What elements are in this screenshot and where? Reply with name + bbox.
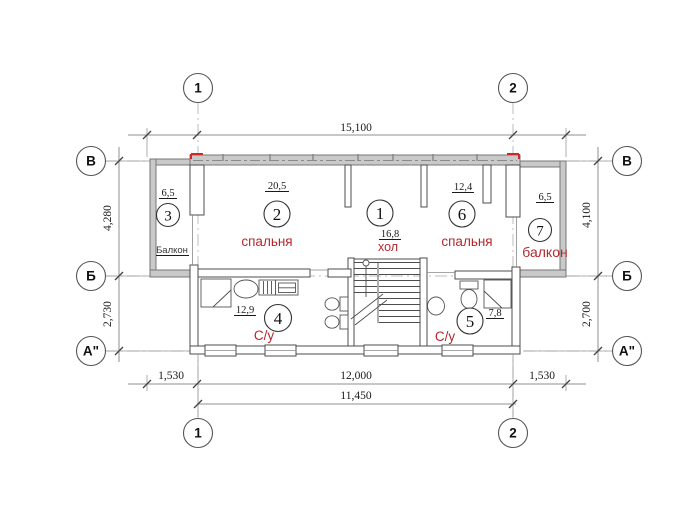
room-6-number: 6 <box>458 205 467 224</box>
wall-stub-room4 <box>328 269 351 277</box>
grid-label-bottom-2: 2 <box>509 426 517 441</box>
wall-room6-room5 <box>455 271 512 279</box>
room-7-number: 7 <box>536 224 544 240</box>
room-4-label: С/у <box>254 328 275 343</box>
left-wall-pier <box>190 165 204 215</box>
wall-room2-room4 <box>198 269 310 277</box>
room-2-number: 2 <box>273 205 282 224</box>
room-1-number: 1 <box>376 204 385 223</box>
wall-room2-hall <box>345 165 351 207</box>
dimension-left: 4,280 2,730 <box>102 147 123 362</box>
dim-bottom-right: 1,530 <box>529 370 555 382</box>
room-4-number: 4 <box>274 309 283 328</box>
room-5-label: С/у <box>435 329 456 344</box>
room-3-number: 3 <box>164 209 172 225</box>
pier-stub <box>483 165 491 203</box>
grid-label-top-1: 1 <box>194 81 202 96</box>
room-7-area: 6,5 <box>538 192 551 203</box>
floor-plan: 15,100 4,280 2,730 4,100 2,700 1,530 12,… <box>0 0 700 525</box>
right-wall-lower <box>512 267 520 352</box>
grid-label-top-2: 2 <box>509 81 517 96</box>
stair-start-post <box>363 260 369 266</box>
room-5-number: 5 <box>466 312 475 331</box>
grid-label-bottom-1: 1 <box>194 426 202 441</box>
dimension-top: 15,100 <box>128 122 586 139</box>
room-3-area: 6,5 <box>161 188 174 199</box>
room-4-area: 12,9 <box>236 305 254 316</box>
staircase <box>351 259 420 325</box>
room-3-label: Балкон <box>156 245 188 256</box>
dim-left-upper: 4,280 <box>102 205 114 231</box>
dimension-bottom: 1,530 12,000 1,530 11,450 <box>128 370 586 408</box>
sink <box>428 297 445 315</box>
room-5-area: 7,8 <box>488 308 501 319</box>
grid-label-right-a: А" <box>619 344 635 359</box>
dim-right-lower: 2,700 <box>581 301 593 327</box>
room-2-label: спальня <box>241 234 292 249</box>
left-wall-lower <box>190 265 198 352</box>
grid-label-left-v: В <box>86 154 96 169</box>
bidet <box>325 315 348 329</box>
dim-bottom-inner: 11,450 <box>340 390 371 402</box>
sink <box>234 280 258 298</box>
grid-label-left-b: Б <box>86 269 96 284</box>
toilet-cistern <box>460 281 478 289</box>
dim-top-label: 15,100 <box>340 122 372 134</box>
dimension-right: 4,100 2,700 <box>581 147 602 362</box>
grid-label-right-b: Б <box>622 269 632 284</box>
room-6-label: спальня <box>441 234 492 249</box>
dim-left-lower: 2,730 <box>102 301 114 327</box>
toilet-bowl <box>461 290 477 309</box>
room-1-label: хол <box>378 240 398 254</box>
dim-bottom-left: 1,530 <box>158 370 184 382</box>
dim-bottom-mid: 12,000 <box>340 370 372 382</box>
room-6-area: 12,4 <box>454 182 473 193</box>
grid-label-right-v: В <box>622 154 632 169</box>
toilet <box>325 297 348 311</box>
wall-hall-room6 <box>421 165 427 207</box>
stair-treads-left <box>354 269 377 293</box>
stair-treads-right <box>379 269 420 323</box>
shower-tray <box>201 279 231 307</box>
stairwell-wall-right <box>420 258 427 346</box>
room-2-area: 20,5 <box>268 181 286 192</box>
room-7-label: балкон <box>522 244 567 260</box>
dim-right-upper: 4,100 <box>581 202 593 228</box>
room-1-area: 16,8 <box>381 229 399 240</box>
right-wall-pier <box>506 165 520 217</box>
grid-label-left-a: А" <box>83 344 99 359</box>
